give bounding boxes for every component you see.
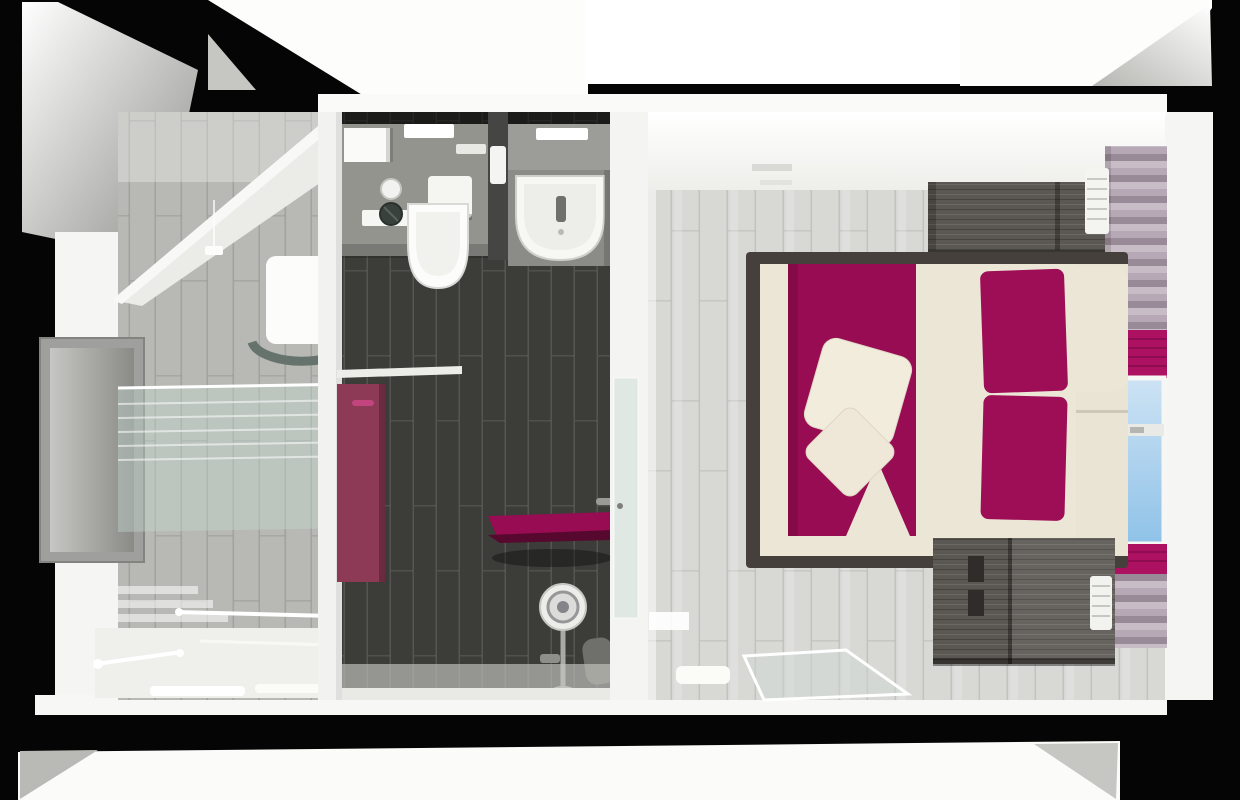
room-bedroom	[648, 112, 1167, 700]
headboard-divider	[1055, 182, 1060, 258]
towel-1	[150, 686, 245, 696]
tub-step-3	[118, 614, 228, 622]
concealed-cistern	[344, 128, 390, 162]
bench-shadow	[492, 549, 612, 567]
mirror-light	[536, 128, 588, 140]
door-edge-shade	[379, 384, 385, 582]
flush-plate	[490, 146, 506, 184]
hand-shower	[540, 654, 560, 663]
wardrobe-handle-2	[968, 590, 984, 616]
magenta-door	[337, 384, 385, 582]
headboard-shade	[928, 182, 936, 258]
bench-seat	[676, 666, 730, 684]
top-wall-shadow	[342, 112, 610, 124]
cistern-shadow	[386, 128, 393, 162]
door-handle	[352, 400, 374, 406]
sink-drain	[558, 229, 564, 235]
magenta-pillow-1	[980, 269, 1068, 394]
tub-step-2	[118, 600, 213, 608]
shower-sill	[342, 688, 610, 700]
toilet-seat	[416, 212, 460, 276]
divider-panel	[488, 112, 508, 260]
wedge-top-middle	[585, 0, 965, 84]
tub-step-1	[118, 586, 198, 594]
floorplan-render	[0, 0, 1240, 800]
wardrobe-door-divider	[1008, 538, 1012, 664]
magenta-pillow-2	[980, 395, 1067, 521]
floor-light-spot	[649, 612, 689, 630]
wardrobe	[933, 538, 1115, 666]
glass-door-handle	[617, 503, 623, 509]
louver-radiator-top	[1085, 168, 1109, 234]
cream-pillow-back	[1058, 266, 1128, 392]
runner-shade	[788, 264, 798, 536]
outer-wall-right	[1165, 112, 1213, 700]
wall-shelf-small	[456, 144, 486, 154]
wall-shower-bedroom	[610, 112, 648, 700]
ceiling-light-bar-1	[404, 124, 454, 138]
ceiling-vent-1	[752, 164, 792, 171]
render-canvas	[0, 0, 1240, 800]
toilet-paper-roll	[381, 179, 401, 199]
bolster-seam	[1076, 410, 1128, 413]
ceiling-vent-2	[760, 180, 792, 185]
sink-faucet	[556, 196, 566, 222]
glass-door	[614, 378, 638, 618]
louver-radiator-bottom	[1090, 576, 1112, 630]
wardrobe-handle-1	[968, 556, 984, 582]
rain-shower-center	[557, 601, 569, 613]
wardrobe-shadow	[933, 658, 1115, 666]
room-shower	[318, 112, 617, 700]
pendant-light	[205, 246, 223, 255]
towel-2	[255, 684, 325, 693]
double-bed	[746, 252, 1128, 568]
window-handle	[1130, 427, 1144, 433]
